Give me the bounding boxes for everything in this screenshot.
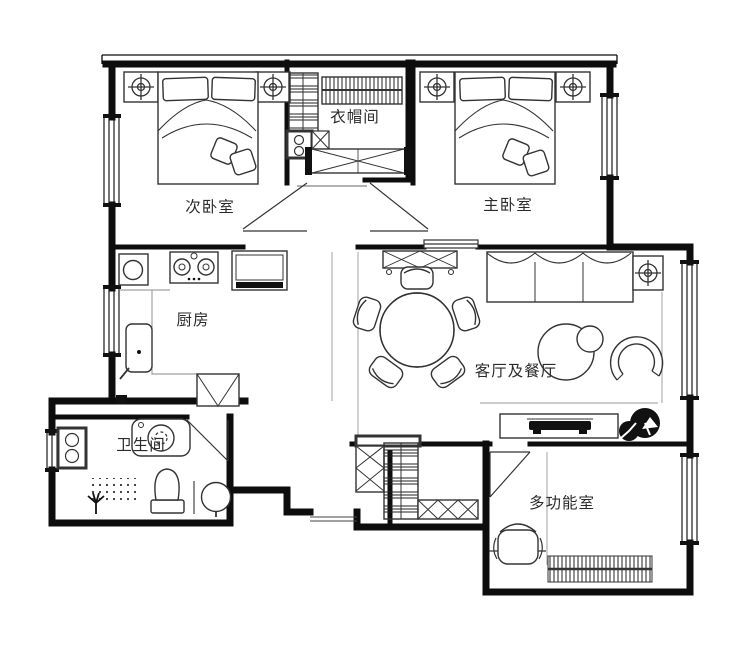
entry-storage	[356, 436, 478, 519]
label-living-dining: 客厅及餐厅	[475, 362, 558, 380]
toilet	[151, 469, 184, 513]
label-bathroom: 卫生间	[116, 436, 166, 454]
tv-stand	[500, 414, 618, 438]
dining-set	[352, 267, 482, 390]
double-bed	[455, 72, 555, 184]
x-brace-cabinet	[356, 446, 384, 492]
door-master-bedroom	[370, 183, 428, 231]
room-secondary-bedroom	[124, 72, 290, 184]
label-kitchen: 厨房	[176, 311, 209, 329]
base-cabinet	[197, 374, 239, 406]
office-chair	[494, 524, 543, 564]
floor-plan-canvas: 次卧室 衣帽间 主卧室 厨房 客厅及餐厅 卫生间 多功能室	[0, 0, 740, 663]
room-living-dining	[352, 251, 663, 441]
double-bed	[158, 72, 258, 184]
sofa	[487, 252, 633, 302]
label-cloakroom: 衣帽间	[330, 108, 380, 126]
storage-bench	[418, 500, 478, 519]
door-secondary-bedroom	[243, 183, 307, 231]
dresser	[305, 147, 411, 175]
label-multipurpose: 多功能室	[529, 494, 595, 512]
dining-chair	[401, 267, 433, 289]
shower-area	[88, 478, 140, 514]
dining-chair	[451, 295, 482, 332]
curved-armchair	[611, 337, 663, 380]
kitchen-sink	[120, 324, 152, 379]
window-west-bedroom	[103, 114, 121, 207]
window-east-master-bedroom	[600, 93, 619, 180]
shoe-bookshelf	[384, 443, 418, 519]
tv	[529, 421, 591, 430]
label-secondary-bedroom: 次卧室	[185, 198, 235, 216]
balcony-slider-master	[424, 240, 478, 248]
window-east-multipurpose	[680, 453, 699, 545]
room-master-bedroom	[420, 72, 590, 184]
floor-plan-drawing: 次卧室 衣帽间 主卧室 厨房 客厅及餐厅 卫生间 多功能室	[0, 0, 740, 663]
room-bathroom	[58, 419, 231, 517]
hanging-rack	[322, 77, 402, 104]
shelf-column	[289, 73, 318, 133]
corner-cabinet	[312, 131, 329, 149]
window-west-kitchen	[103, 285, 121, 357]
window-east-living	[680, 260, 699, 400]
gas-stove	[170, 252, 218, 283]
water-heater	[119, 254, 148, 285]
door-multipurpose	[490, 452, 530, 497]
room-multipurpose	[489, 524, 652, 582]
bathroom-cabinet	[58, 428, 86, 468]
dining-chair	[352, 295, 383, 332]
fridge	[232, 251, 287, 290]
door-bathroom	[187, 420, 228, 461]
bathroom-sink	[194, 481, 231, 517]
label-master-bedroom: 主卧室	[483, 196, 533, 214]
structural-column	[116, 395, 127, 404]
side-table-lamp	[633, 256, 663, 290]
potted-plant	[619, 408, 660, 441]
clothes-rack	[548, 556, 652, 582]
